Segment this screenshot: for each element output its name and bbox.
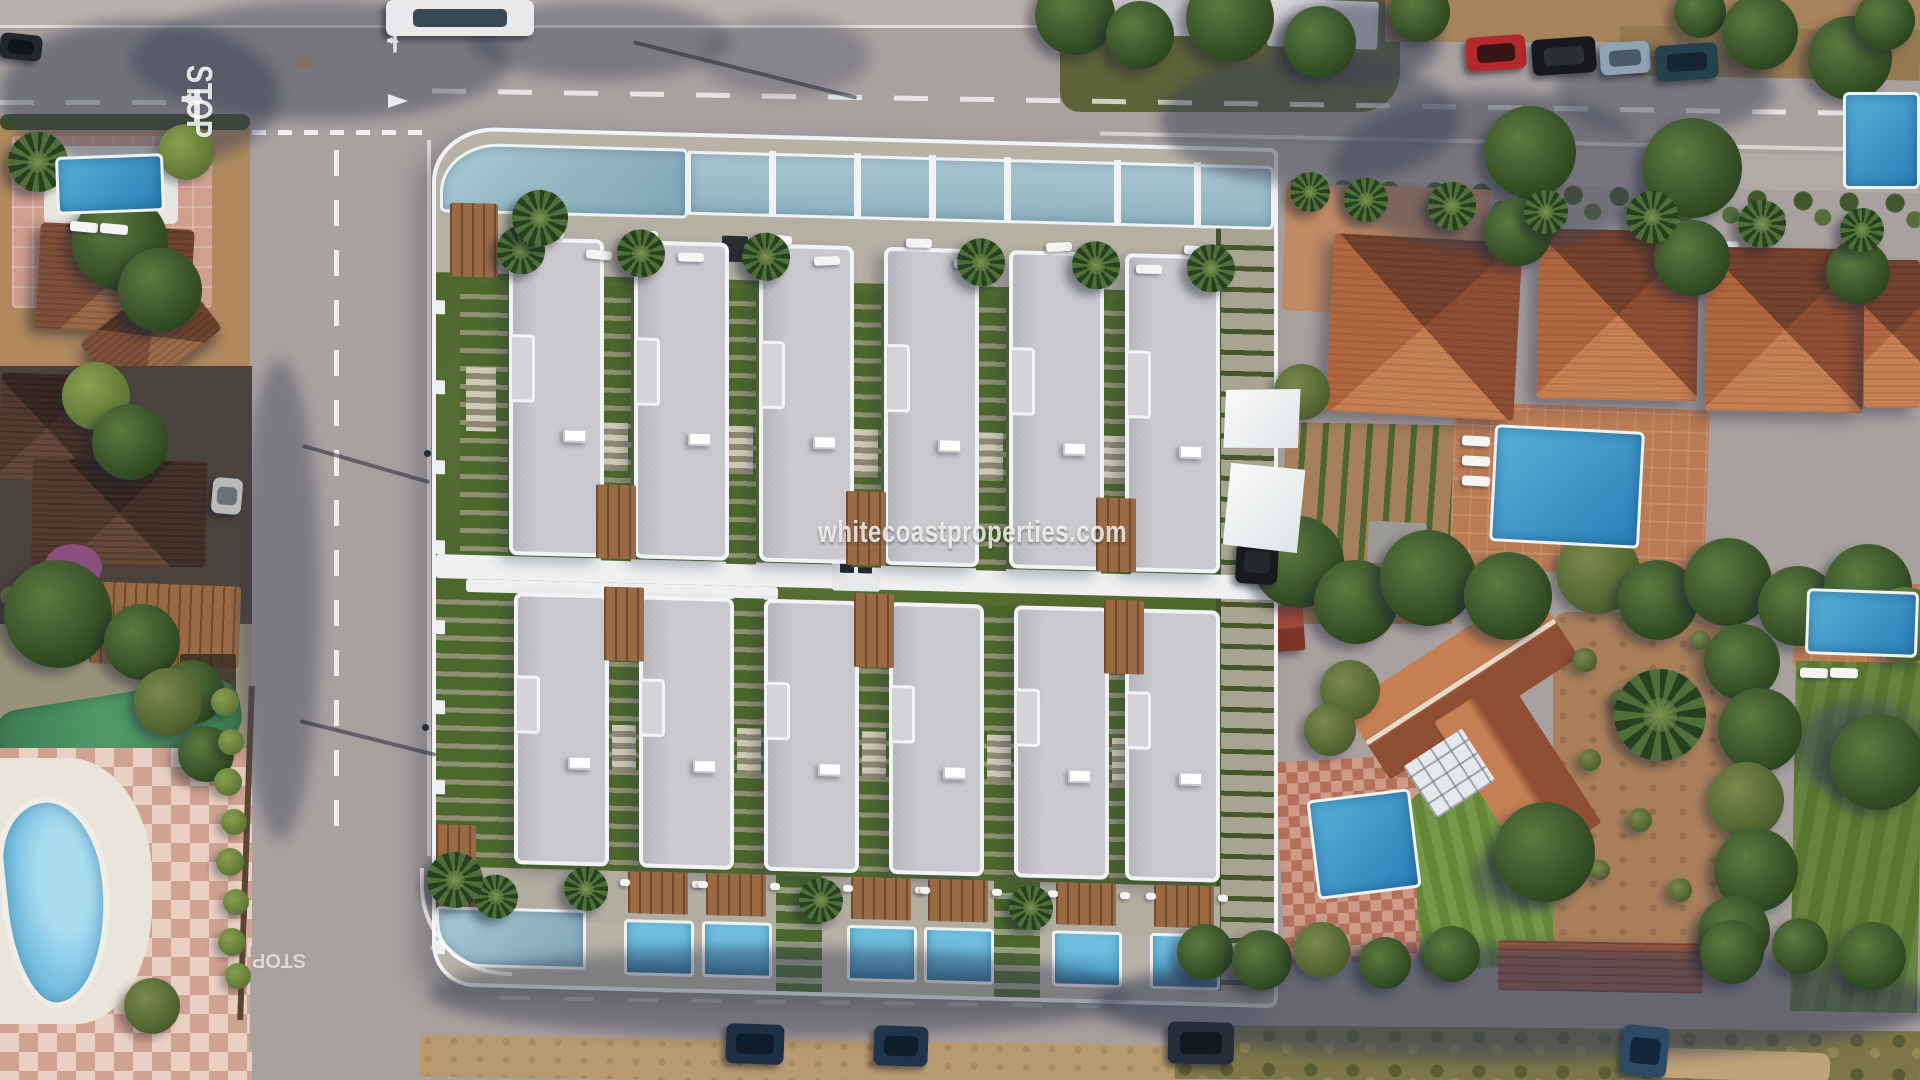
deck-chair — [698, 881, 708, 888]
car-glass — [1476, 43, 1516, 63]
vroad-curb — [427, 140, 431, 856]
garden-stairs — [854, 429, 878, 478]
palm-tree — [1626, 191, 1678, 243]
tree — [1668, 878, 1692, 902]
tree — [211, 688, 239, 716]
tree — [1106, 1, 1174, 69]
gray-car-side-road — [210, 477, 243, 515]
car-glass — [1543, 45, 1585, 67]
roof-step — [1014, 688, 1040, 747]
shade-sail-2 — [1222, 463, 1305, 554]
palm-tree — [1614, 669, 1706, 761]
sun-lounger — [1462, 475, 1490, 486]
roof-skylight — [938, 438, 962, 453]
car-glass — [217, 486, 238, 506]
townhouse-roof — [1125, 253, 1220, 573]
tree-shadow — [240, 360, 320, 840]
straight-arrow-marking — [388, 94, 408, 108]
roof-step — [514, 675, 540, 734]
street-lamp-pole-2 — [422, 724, 429, 731]
pergola-deck — [851, 877, 911, 921]
tree — [1495, 802, 1595, 902]
palm-tree — [1009, 885, 1053, 930]
roof-step — [889, 685, 915, 744]
tree — [1284, 6, 1356, 78]
roof-step — [509, 334, 535, 403]
car-glass — [1243, 550, 1271, 574]
townhouse-roof — [514, 592, 609, 866]
gate-pier — [436, 620, 445, 634]
aerial-photo-scene: STOP STOP whitecoastproperties.com — [0, 0, 1920, 1080]
deck-chair — [920, 887, 930, 894]
pergola-deck — [928, 879, 988, 923]
tree — [1294, 922, 1350, 978]
deck-chair — [843, 885, 853, 892]
roof-skylight — [1179, 772, 1203, 787]
pergola-roof — [1104, 600, 1144, 675]
roof-step — [759, 341, 785, 410]
roof-skylight — [568, 756, 592, 771]
pergola-roof — [596, 484, 636, 559]
garden-stairs — [604, 423, 628, 472]
fork-arrow-marking — [168, 76, 226, 124]
pool-divider — [1004, 157, 1011, 223]
palm-tree — [1428, 182, 1476, 230]
deck-chair — [1218, 895, 1228, 902]
tree — [4, 560, 112, 668]
palm-tree — [617, 229, 665, 278]
shade-sail-1 — [1220, 386, 1303, 452]
neighbor-house-roof — [1325, 233, 1522, 421]
palm-tree — [1290, 172, 1330, 212]
tree — [214, 768, 242, 796]
car-glass — [413, 9, 508, 28]
tree — [124, 978, 180, 1034]
dev-wood-deck — [450, 202, 498, 277]
sun-lounger — [1462, 435, 1490, 446]
pool-divider — [1114, 160, 1121, 226]
tree — [1718, 688, 1802, 772]
pool-divider — [929, 155, 936, 221]
tree — [1424, 926, 1480, 982]
roof-skylight — [563, 428, 587, 443]
roof-step — [639, 679, 665, 738]
roof-skylight — [693, 759, 717, 774]
palm-tree — [957, 238, 1005, 287]
tree — [218, 729, 244, 755]
pergola-roof — [854, 593, 894, 668]
street-lamp-pole — [424, 450, 431, 457]
palm-tree — [1738, 200, 1786, 248]
garden-stairs — [729, 426, 753, 475]
garden-stairs — [862, 731, 886, 780]
dark-car-left-edge — [0, 32, 43, 62]
tree — [1359, 937, 1411, 989]
roof-skylight — [688, 432, 712, 447]
neighbor-pool-top-right-corner — [1843, 92, 1920, 189]
blue-car-bottom-4 — [1620, 1024, 1671, 1079]
tree — [218, 928, 246, 956]
navy-car-bottom-1 — [725, 1023, 784, 1065]
palm-tree — [742, 232, 790, 281]
tree — [1579, 749, 1601, 771]
deck-chair — [770, 883, 780, 890]
palm-tree — [1187, 244, 1235, 293]
townhouse-roof — [889, 602, 984, 876]
tree — [118, 248, 202, 332]
tree — [92, 404, 168, 480]
gate-pier — [436, 460, 445, 474]
fork-arrow-marking-2 — [380, 22, 410, 60]
roof-step — [764, 682, 790, 741]
garden-stairs — [612, 725, 636, 774]
sun-lounger — [678, 252, 704, 262]
car-glass — [736, 1033, 774, 1055]
tree — [1830, 714, 1920, 810]
car-glass — [1608, 49, 1641, 68]
palm-tree — [1840, 208, 1884, 252]
development-render-block — [432, 126, 1278, 1008]
palm-tree — [1344, 178, 1388, 222]
sun-lounger — [906, 238, 932, 248]
pool-divider — [1194, 162, 1201, 228]
tree — [1484, 106, 1576, 198]
silver-blue-car — [1599, 40, 1651, 75]
tree — [1177, 924, 1233, 980]
tree — [1464, 552, 1552, 640]
roof-skylight — [1063, 442, 1087, 457]
pergola-deck — [1056, 882, 1116, 926]
neighbor-pool-right-mid — [1306, 788, 1421, 900]
gate-pier — [436, 300, 445, 314]
pergola-roof — [604, 587, 644, 662]
tree — [225, 963, 251, 989]
watermark-text: whitecoastproperties.com — [818, 514, 1127, 550]
neighbor-pool-left-villa — [55, 153, 165, 215]
tree — [1700, 920, 1764, 984]
pergola-deck — [1154, 885, 1214, 929]
red-car — [1465, 34, 1527, 72]
townhouse-roof — [509, 237, 604, 557]
car-glass — [1180, 1032, 1223, 1055]
townhouse-roof — [634, 240, 729, 560]
townhouse-roof — [639, 595, 734, 869]
black-car — [1531, 36, 1597, 76]
deck-chair — [620, 879, 630, 886]
tree — [1628, 808, 1652, 832]
stop-road-marking-secondary: STOP — [252, 948, 306, 971]
gate-pier — [436, 380, 445, 394]
gate-pier — [436, 700, 445, 714]
roof-skylight — [1179, 445, 1203, 460]
roof-step — [884, 344, 910, 413]
sun-lounger — [1462, 455, 1490, 466]
neighbor-pool-right-upper — [1489, 424, 1645, 549]
garden-stairs — [737, 728, 761, 777]
stop-bar — [252, 130, 428, 135]
tree-shadow — [700, 16, 870, 96]
garden-stairs — [987, 735, 1011, 784]
roof-step — [1009, 347, 1035, 416]
townhouse-roof — [764, 599, 859, 873]
pool-divider — [769, 151, 776, 217]
sun-lounger — [1830, 668, 1858, 679]
garden-stairs — [979, 432, 1003, 481]
tree — [1232, 930, 1292, 990]
tree — [1708, 762, 1784, 838]
roof-skylight — [813, 435, 837, 450]
deck-chair — [1120, 892, 1130, 899]
teal-car — [1655, 42, 1719, 82]
roof-skylight — [818, 763, 842, 778]
dark-car-bottom-3 — [1168, 1021, 1235, 1064]
neighbor-pool-right-bottom — [1805, 588, 1919, 658]
roof-step — [1125, 691, 1151, 750]
palm-tree — [1072, 241, 1120, 290]
palm-tree — [1524, 190, 1568, 234]
deck-chair — [1146, 893, 1156, 900]
pool-divider — [854, 153, 861, 219]
roof-step — [634, 337, 660, 406]
tree — [1772, 918, 1828, 974]
tree — [221, 809, 247, 835]
car-glass — [1667, 51, 1708, 72]
gate-pier — [436, 540, 445, 554]
tree — [223, 889, 249, 915]
tree — [1304, 704, 1356, 756]
car-glass — [7, 39, 35, 55]
dev-right-walkway — [1220, 229, 1274, 992]
sun-lounger — [1136, 264, 1162, 274]
tree — [1573, 648, 1597, 672]
palm-tree — [427, 852, 483, 908]
roof-skylight — [1068, 769, 1092, 784]
gate-pier — [436, 780, 445, 794]
tree — [1690, 630, 1710, 650]
palm-tree — [512, 190, 568, 246]
pergola-deck — [628, 871, 688, 915]
dev-left-stairs — [466, 367, 496, 432]
sun-lounger — [814, 256, 841, 266]
tree — [1838, 922, 1906, 990]
vroad-center-dash — [334, 150, 339, 840]
sun-lounger — [1046, 242, 1073, 252]
sun-lounger — [1800, 668, 1828, 679]
palm-tree — [564, 866, 608, 911]
car-glass — [1629, 1037, 1661, 1066]
car-glass — [883, 1035, 918, 1057]
tree — [134, 668, 202, 736]
deck-chair — [992, 889, 1002, 896]
tree — [1380, 530, 1476, 626]
palm-tree — [799, 878, 843, 923]
roof-skylight — [943, 766, 967, 781]
pergola-deck — [706, 873, 766, 917]
navy-car-bottom-2 — [873, 1025, 928, 1067]
roof-step — [1125, 350, 1151, 419]
tree — [216, 848, 244, 876]
townhouse-roof — [1014, 605, 1109, 879]
